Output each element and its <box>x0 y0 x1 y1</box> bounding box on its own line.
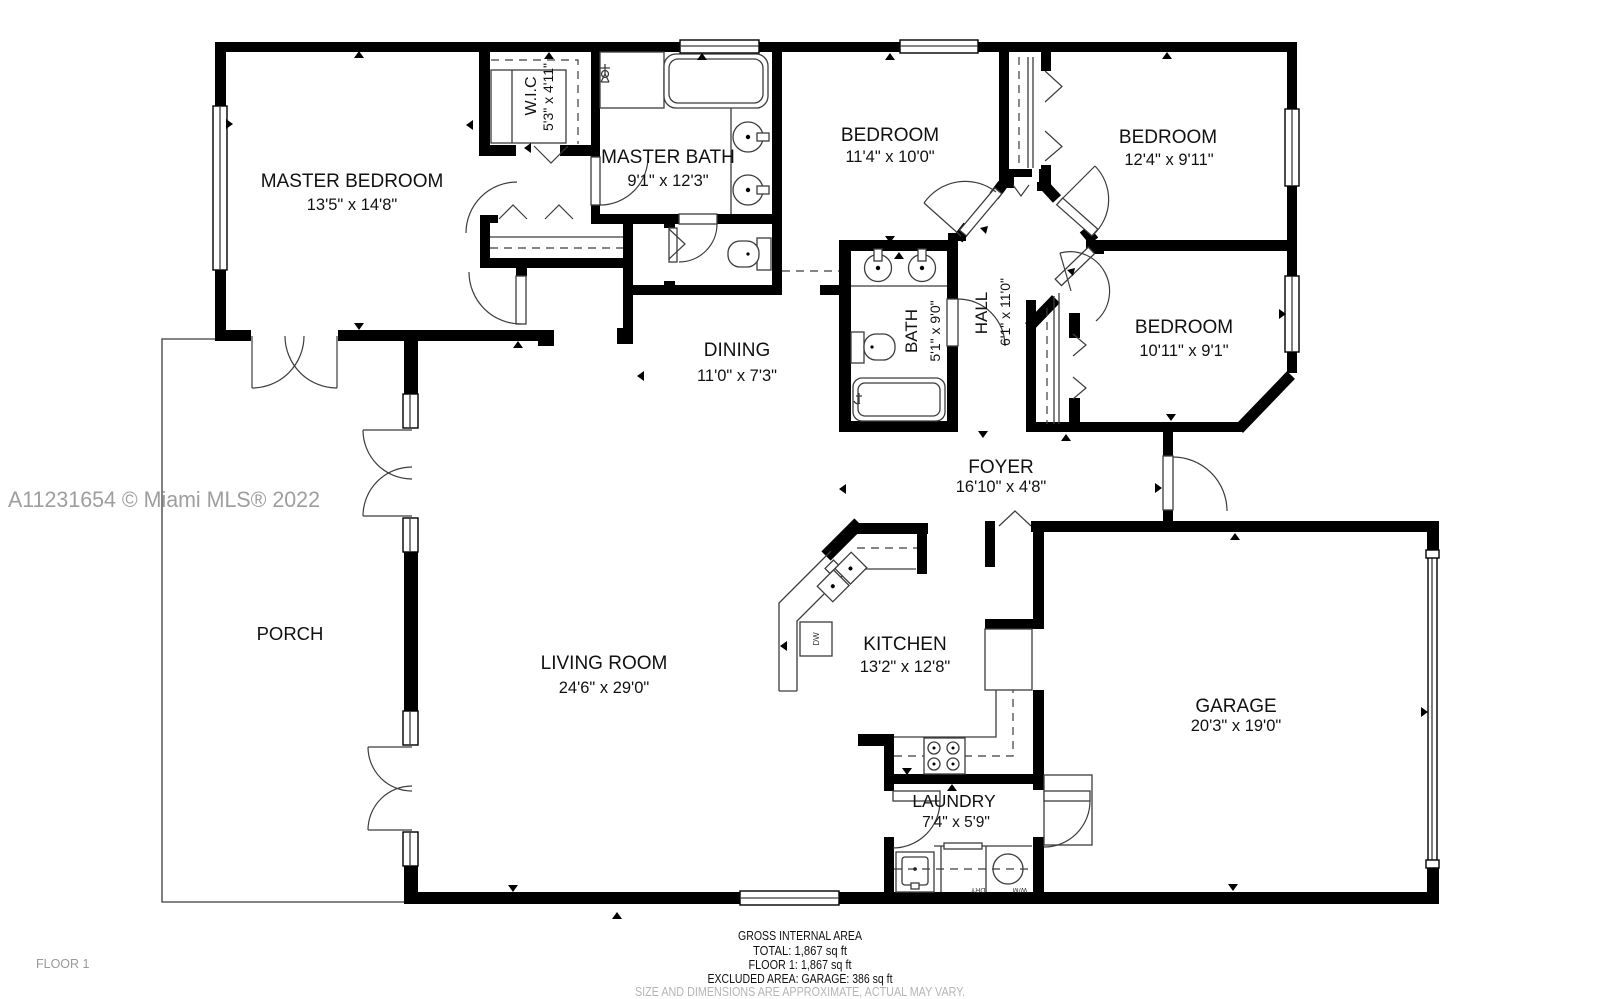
svg-text:24'6" x 29'0": 24'6" x 29'0" <box>559 679 650 697</box>
svg-text:5'3" x 4'11": 5'3" x 4'11" <box>540 63 556 131</box>
svg-text:BEDROOM: BEDROOM <box>1119 127 1217 148</box>
svg-text:MASTER BATH: MASTER BATH <box>601 147 735 168</box>
svg-text:FOYER: FOYER <box>968 457 1033 478</box>
svg-text:9'1" x 12'3": 9'1" x 12'3" <box>627 172 708 190</box>
svg-text:KITCHEN: KITCHEN <box>863 634 946 655</box>
svg-text:FLOOR 1: FLOOR 1 <box>36 957 90 971</box>
svg-text:GROSS INTERNAL AREA: GROSS INTERNAL AREA <box>738 928 862 943</box>
svg-text:W.I.C: W.I.C <box>523 76 540 115</box>
svg-text:HALL: HALL <box>972 292 991 335</box>
svg-text:13'2" x 12'8": 13'2" x 12'8" <box>860 658 951 676</box>
svg-text:EXCLUDED AREA: GARAGE: 386 sq: EXCLUDED AREA: GARAGE: 386 sq ft <box>708 971 893 986</box>
svg-text:TOTAL: 1,867 sq ft: TOTAL: 1,867 sq ft <box>753 943 847 958</box>
svg-text:DRY: DRY <box>970 886 985 893</box>
svg-text:6'1" x 11'0": 6'1" x 11'0" <box>997 278 1013 346</box>
svg-text:20'3" x 19'0": 20'3" x 19'0" <box>1191 717 1282 735</box>
svg-text:10'11" x 9'1": 10'11" x 9'1" <box>1139 342 1228 360</box>
svg-text:12'4" x 9'11": 12'4" x 9'11" <box>1124 151 1213 169</box>
svg-text:16'10" x 4'8": 16'10" x 4'8" <box>956 478 1047 496</box>
svg-text:LIVING ROOM: LIVING ROOM <box>541 653 668 674</box>
svg-text:PORCH: PORCH <box>257 623 324 644</box>
svg-text:11'4" x 10'0": 11'4" x 10'0" <box>845 148 934 166</box>
svg-text:SIZE AND DIMENSIONS ARE APPROX: SIZE AND DIMENSIONS ARE APPROXIMATE, ACT… <box>635 985 965 999</box>
svg-text:BATH: BATH <box>902 309 921 353</box>
svg-text:11'0" x 7'3": 11'0" x 7'3" <box>697 367 777 385</box>
svg-text:FLOOR 1: 1,867 sq ft: FLOOR 1: 1,867 sq ft <box>749 957 852 972</box>
svg-text:DW: DW <box>812 632 821 646</box>
svg-text:A11231654 © Miami MLS® 2022: A11231654 © Miami MLS® 2022 <box>8 487 320 512</box>
svg-text:LAUNDRY: LAUNDRY <box>912 791 996 811</box>
svg-text:BEDROOM: BEDROOM <box>841 125 939 146</box>
svg-text:7'4" x 5'9": 7'4" x 5'9" <box>922 814 990 831</box>
svg-text:13'5" x 14'8": 13'5" x 14'8" <box>307 196 398 214</box>
svg-text:BEDROOM: BEDROOM <box>1135 317 1233 338</box>
svg-text:GARAGE: GARAGE <box>1195 696 1276 717</box>
svg-text:DINING: DINING <box>704 340 771 361</box>
svg-text:W/M: W/M <box>1013 886 1028 893</box>
svg-text:5'1" x 9'0": 5'1" x 9'0" <box>927 300 943 361</box>
svg-text:MASTER BEDROOM: MASTER BEDROOM <box>261 171 444 192</box>
